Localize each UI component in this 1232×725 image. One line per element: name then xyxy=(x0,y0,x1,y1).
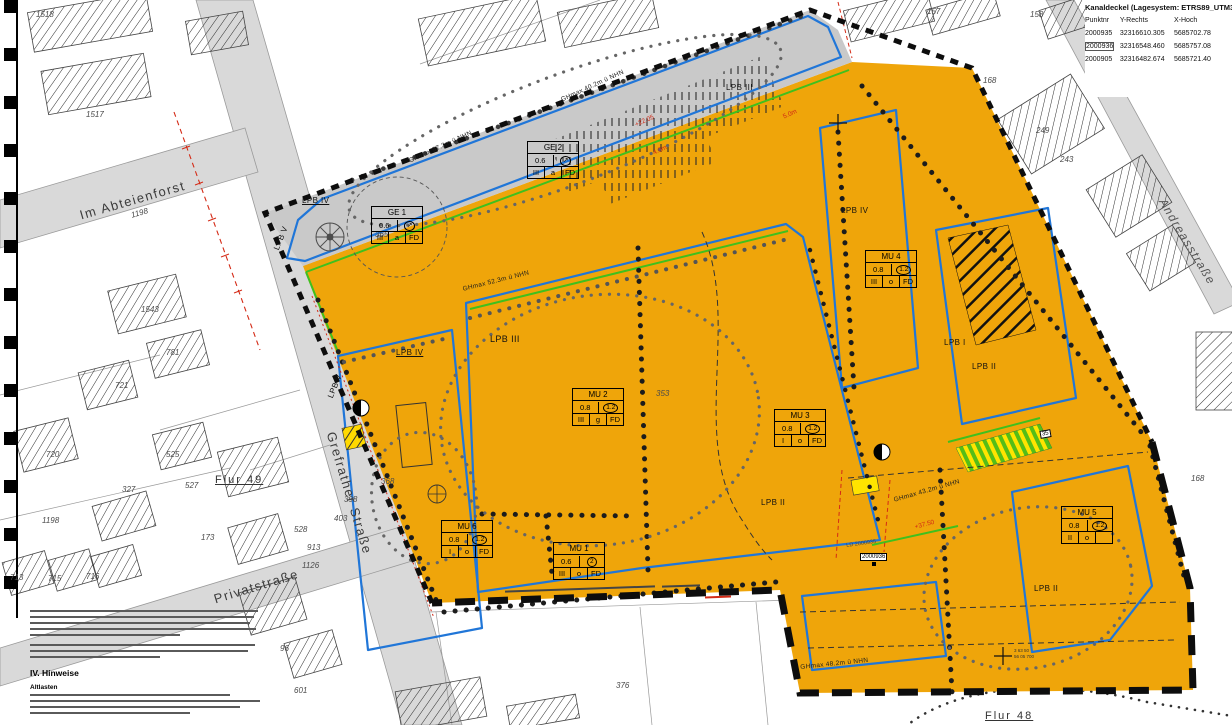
section-marker-icon xyxy=(874,444,890,460)
parcel-number: 243 xyxy=(1060,155,1073,164)
zone-label: LPB I xyxy=(944,338,966,347)
zone-label: LPB III xyxy=(490,334,520,344)
zone-label: LPB IV xyxy=(841,206,868,215)
street-abteienforst-band xyxy=(0,128,258,248)
parcel-number: 1518 xyxy=(36,10,54,19)
section-marker-icon xyxy=(353,400,369,416)
parcel-number: 376 xyxy=(616,681,629,690)
note-paragraph-placeholder xyxy=(30,694,282,714)
parcel-number: 403 xyxy=(334,514,347,523)
flur-48-label: Flur 48 xyxy=(985,710,1033,722)
zone-box-mu5: MU 5 0.81.2 IIo xyxy=(1061,506,1113,544)
parcel-number: 158 xyxy=(1030,10,1043,19)
zone-label: LPB III xyxy=(726,83,753,92)
parcel-number: 1198 xyxy=(42,516,59,525)
legend-strip-line xyxy=(16,0,18,618)
bebauungsplan-map: Im Abteienforst 1198 Grefrather Straße P… xyxy=(0,0,1232,725)
zone-label: LPB IV xyxy=(302,196,329,205)
zone-box-mu3: MU 3 0.81.2 IoFD xyxy=(774,409,826,447)
table-row: 200090532316482.6745685721.40 xyxy=(1085,56,1232,63)
legend-strip xyxy=(4,0,16,618)
zone-box-name: GE 1 xyxy=(372,207,422,219)
parcel-number: 1126 xyxy=(302,561,319,570)
note-paragraph-placeholder xyxy=(30,644,282,658)
zone-box-ge1: GE 1 0.6↗ IIIaFD xyxy=(371,206,423,244)
zone-box-mu4: MU 4 0.81.2 IIIoFD xyxy=(865,250,917,288)
parcel-number: 1517 xyxy=(86,110,104,119)
table-row: 200093632316548.4605685757.08 xyxy=(1085,43,1232,50)
table-row: 200093532316610.3055685702.78 xyxy=(1085,30,1232,37)
parcel-number: 720 xyxy=(46,450,59,459)
parcel-number: 527 xyxy=(185,481,198,490)
kanaldeckel-table: Kanaldeckel (Lagesystem: ETRS89_UTM32) P… xyxy=(1085,0,1232,97)
tree-icon xyxy=(316,223,344,251)
parcel-number: 713 xyxy=(10,573,23,582)
table-header: PunktnrY-RechtsX-Hoch xyxy=(1085,17,1232,24)
survey-point-number: 2000936 xyxy=(860,553,887,561)
grid-coordinates: 3 63 50 56 05 700 xyxy=(1014,648,1034,659)
zone-label: LPB II xyxy=(972,362,996,371)
parcel-number: 398 xyxy=(344,495,357,504)
parcel-number: 249 xyxy=(1036,126,1049,135)
parcel-number: 168 xyxy=(983,76,996,85)
circle-arrow-icon: ↗ xyxy=(560,156,571,166)
parcel-number: 781 xyxy=(166,348,179,357)
parcel-number: 528 xyxy=(294,525,307,534)
zone-label: LPB II xyxy=(761,498,785,507)
zone-box-ge2: GE 2 0.6↗ IIIaFD xyxy=(527,141,579,179)
hinweise-heading: IV. Hinweise xyxy=(30,668,282,678)
parcel-number: 715 xyxy=(48,574,61,583)
hinweise-subheading: Altlasten xyxy=(30,684,282,691)
parcel-number: 601 xyxy=(294,686,307,695)
parcel-number: 525 xyxy=(166,450,179,459)
tree-icon xyxy=(428,485,446,503)
parcel-number: 168 xyxy=(1191,474,1204,483)
zone-label: LPB II xyxy=(1034,584,1058,593)
zone-box-mu2: MU 2 0.81.2 IIIgFD xyxy=(572,388,624,426)
zone-box-mu1: MU 1 0.62 IIIoFD xyxy=(553,542,605,580)
table-title: Kanaldeckel (Lagesystem: ETRS89_UTM32) xyxy=(1085,3,1232,12)
parcel-number: 327 xyxy=(122,485,135,494)
parcel-number: 173 xyxy=(201,533,214,542)
manhole-point xyxy=(872,562,876,566)
parcel-number: 368 xyxy=(381,477,394,486)
hinweise-block: IV. Hinweise Altlasten xyxy=(30,610,282,718)
parcel-number: 721 xyxy=(115,381,128,390)
parcel-number: 913 xyxy=(307,543,320,552)
parcel-number: 353 xyxy=(656,389,669,398)
parcel-number: 716 xyxy=(86,572,99,581)
parcel-number: 1543 xyxy=(141,305,159,314)
zone-label: LPB IV xyxy=(396,348,423,357)
circle-arrow-icon: ↗ xyxy=(404,221,415,231)
zone-box-mu6: MU 6 0.81.2 IoFD xyxy=(441,520,493,558)
parcel-number: 157 xyxy=(927,7,940,16)
flur-49-label: Flur 49 xyxy=(215,474,263,486)
note-paragraph-placeholder xyxy=(30,610,282,636)
